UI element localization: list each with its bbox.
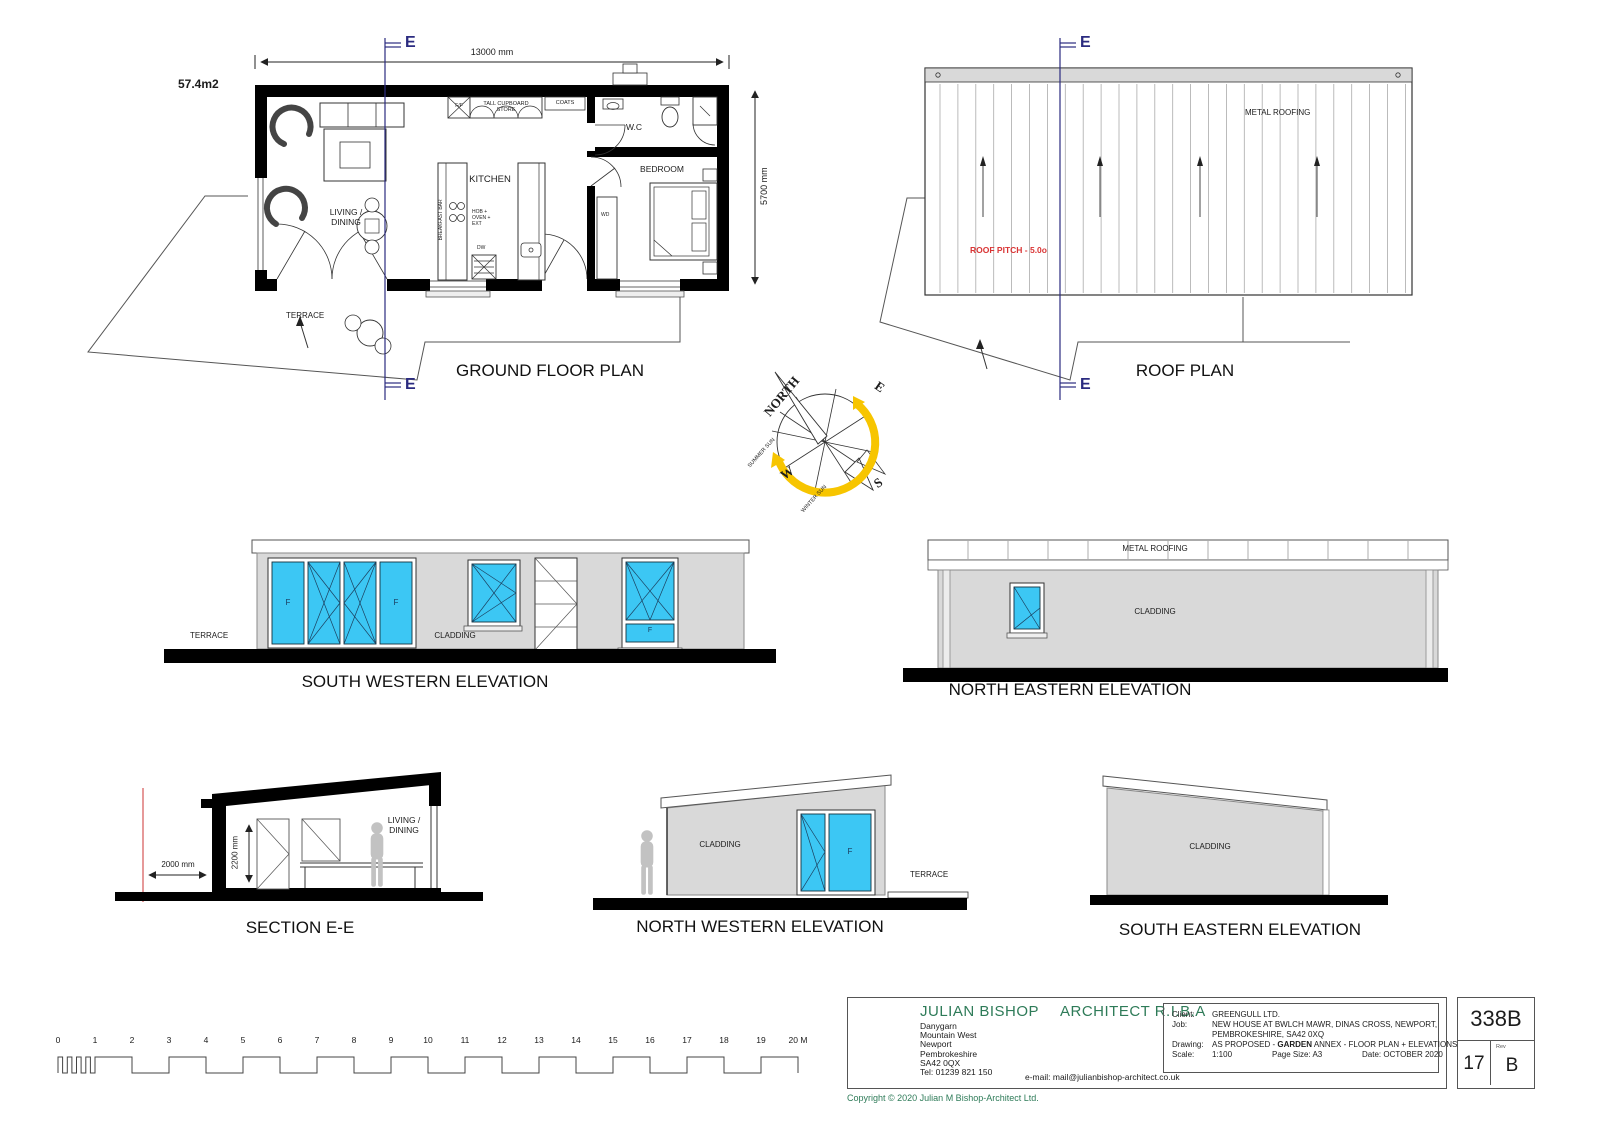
scale-label: Scale:	[1172, 1050, 1212, 1060]
room-kitchen: KITCHEN	[460, 175, 520, 186]
floor-plan-title: GROUND FLOOR PLAN	[420, 361, 680, 381]
section-panel: 2000 mm 2200 mm LIVING / DINING SECTION …	[115, 742, 495, 942]
job-value-1: NEW HOUSE AT BWLCH MAWR, DINAS CROSS, NE…	[1212, 1020, 1437, 1029]
roof-section-marker-top: E	[1080, 34, 1091, 52]
drawing-label: Drawing:	[1172, 1040, 1212, 1050]
date-value: Date: OCTOBER 2020	[1362, 1050, 1443, 1059]
drawing-value-bold: GARDEN	[1277, 1040, 1312, 1049]
terrace-label: TERRACE	[286, 311, 324, 320]
se-cladding-label: CLADDING	[1170, 842, 1250, 851]
dw-label: DW	[477, 246, 485, 252]
floor-area-label: 57.4m2	[178, 78, 219, 92]
drawing-value-post: ANNEX - FLOOR PLAN + ELEVATIONS	[1312, 1040, 1457, 1049]
section-room-label: LIVING / DINING	[373, 816, 435, 836]
scale-bar-drawing	[50, 1035, 840, 1080]
project-info-box: Client:GREENGULL LTD. Job:NEW HOUSE AT B…	[1163, 1003, 1439, 1073]
sw-elevation-title: SOUTH WESTERN ELEVATION	[270, 672, 580, 692]
se-elevation-panel: CLADDING SOUTH EASTERN ELEVATION	[1065, 748, 1445, 940]
roof-plan-panel: E E METAL ROOFING ROOF PITCH - 5.0o ROOF…	[820, 28, 1460, 423]
section-title: SECTION E-E	[190, 918, 410, 938]
nw-f-label: F	[842, 847, 858, 856]
architectural-drawing-sheet: { "floor_plan": { "title": "GROUND FLOOR…	[0, 0, 1600, 1131]
nw-elevation-drawing	[585, 752, 975, 937]
roof-pitch-label: ROOF PITCH - 5.0o	[970, 246, 1047, 256]
scale-bar: 01234567891011121314151617181920 M	[50, 1035, 840, 1085]
nw-terrace-label: TERRACE	[910, 870, 948, 879]
nw-cladding-label: CLADDING	[685, 840, 755, 849]
sw-elevation-panel: TERRACE CLADDING F F F SOUTH WESTERN ELE…	[160, 532, 780, 702]
address-line: Tel: 01239 821 150	[920, 1068, 992, 1077]
sw-f1-label: F	[280, 598, 296, 607]
sheet-number: 17	[1458, 1040, 1491, 1085]
client-label: Client:	[1172, 1010, 1212, 1020]
architect-name: JULIAN BISHOP	[920, 1003, 1039, 1020]
sw-cladding-label: CLADDING	[420, 631, 490, 640]
section-marker-e-top: E	[405, 34, 416, 52]
tall-cupboard-label: TALL CUPBOARD STORE	[474, 101, 538, 114]
rev-value: B	[1490, 1040, 1534, 1085]
section-drawing	[115, 742, 495, 942]
breakfast-bar-label: BREAKFAST BAR	[439, 185, 445, 255]
dim-13000: 13000 mm	[432, 47, 552, 57]
ne-elevation-panel: METAL ROOFING CLADDING NORTH EASTERN ELE…	[895, 525, 1455, 705]
drawing-number-box: 338B 17 Rev B	[1457, 997, 1535, 1089]
dim-5700: 5700 mm	[759, 156, 769, 216]
room-living-dining: LIVING / DINING	[318, 208, 374, 228]
drawing-value-pre: AS PROPOSED -	[1212, 1040, 1277, 1049]
drawing-number: 338B	[1458, 998, 1534, 1041]
se-elevation-drawing	[1065, 748, 1445, 940]
sw-f3-label: F	[642, 627, 658, 635]
page-size: Page Size: A3	[1272, 1050, 1362, 1060]
nw-elevation-title: NORTH WESTERN ELEVATION	[595, 917, 925, 937]
sw-f2-label: F	[388, 598, 404, 607]
compass-rose: NORTH E W S SUMMER SUN WINTER SUN	[745, 358, 910, 518]
ne-elevation-title: NORTH EASTERN ELEVATION	[905, 680, 1235, 700]
coats-label: COATS	[547, 100, 583, 106]
hob-label: HOB + OVEN + EXT	[472, 210, 498, 227]
nw-elevation-panel: CLADDING F TERRACE NORTH WESTERN ELEVATI…	[585, 752, 975, 937]
copyright-line: Copyright © 2020 Julian M Bishop-Archite…	[847, 1093, 1039, 1103]
room-wc: W.C	[626, 123, 642, 133]
job-label: Job:	[1172, 1020, 1212, 1030]
section-dim-2200: 2200 mm	[230, 823, 239, 883]
roof-plan-title: ROOF PLAN	[1080, 361, 1290, 381]
ne-metal-roofing-label: METAL ROOFING	[1095, 544, 1215, 553]
room-bedroom: BEDROOM	[632, 165, 692, 175]
architect-email: e-mail: mail@julianbishop-architect.co.u…	[1025, 1073, 1180, 1083]
job-value-2: PEMBROKESHIRE, SA42 0XQ	[1212, 1030, 1324, 1039]
client-value: GREENGULL LTD.	[1212, 1010, 1280, 1019]
title-block: JULIAN BISHOP ARCHITECT R.I.B.A Danygarn…	[845, 975, 1600, 1125]
architect-address: Danygarn Mountain West Newport Pembrokes…	[920, 1022, 992, 1077]
wd-label: WD	[601, 213, 609, 219]
section-dim-2000: 2000 mm	[143, 860, 213, 869]
metal-roofing-label: METAL ROOFING	[1245, 108, 1310, 117]
section-marker-e-bottom: E	[405, 376, 416, 394]
sw-terrace-label: TERRACE	[190, 631, 228, 640]
scale-value: 1:100	[1212, 1050, 1272, 1060]
ne-cladding-label: CLADDING	[1120, 607, 1190, 616]
ground-floor-plan-panel: E E 13000 mm 5700 mm 57.4m2 LIVING / DIN…	[40, 28, 820, 423]
se-elevation-title: SOUTH EASTERN ELEVATION	[1080, 920, 1400, 940]
ff-label: F/F	[449, 104, 469, 110]
